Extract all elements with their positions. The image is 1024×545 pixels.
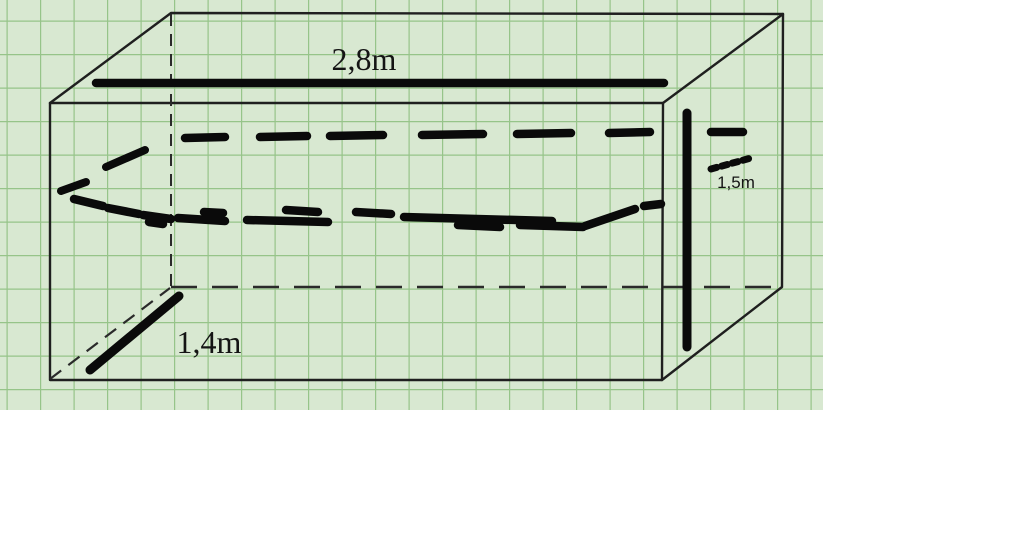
marker-dash [609, 132, 650, 133]
marker-dash [644, 204, 661, 206]
marker-dash [422, 134, 483, 135]
graph-paper-background [0, 0, 823, 410]
depth-label: 1,4m [177, 324, 242, 360]
marker-dash [458, 225, 500, 227]
marker-dash [247, 220, 328, 222]
diagram-page: 2,8m 1,4m 1,5m [0, 0, 1024, 545]
marker-dash [520, 225, 583, 227]
marker-dash [149, 222, 163, 224]
marker-dash [108, 208, 139, 214]
marker-dash [356, 212, 391, 214]
width-label: 2,8m [332, 41, 397, 77]
marker-dash [330, 135, 383, 136]
marker-dash [404, 217, 552, 221]
cuboid-diagram-canvas: 2,8m 1,4m 1,5m [0, 0, 1024, 545]
marker-dash [517, 133, 571, 134]
marker-dash [260, 136, 307, 137]
marker-dash [204, 212, 223, 213]
marker-dash [185, 137, 225, 138]
marker-dash [286, 210, 318, 212]
marker-dash [178, 218, 225, 221]
height-label: 1,5m [717, 173, 755, 192]
